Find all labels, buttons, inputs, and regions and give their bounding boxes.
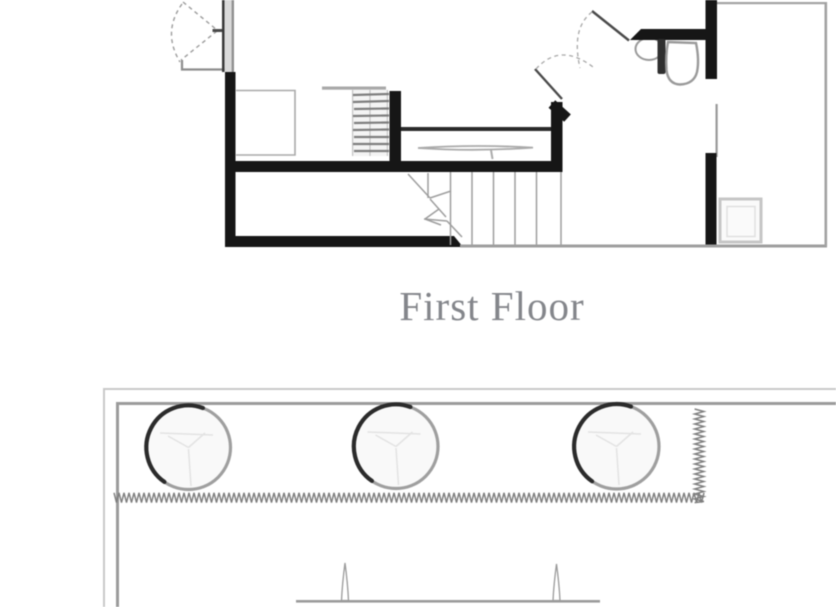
- svg-text:First Floor: First Floor: [399, 283, 584, 329]
